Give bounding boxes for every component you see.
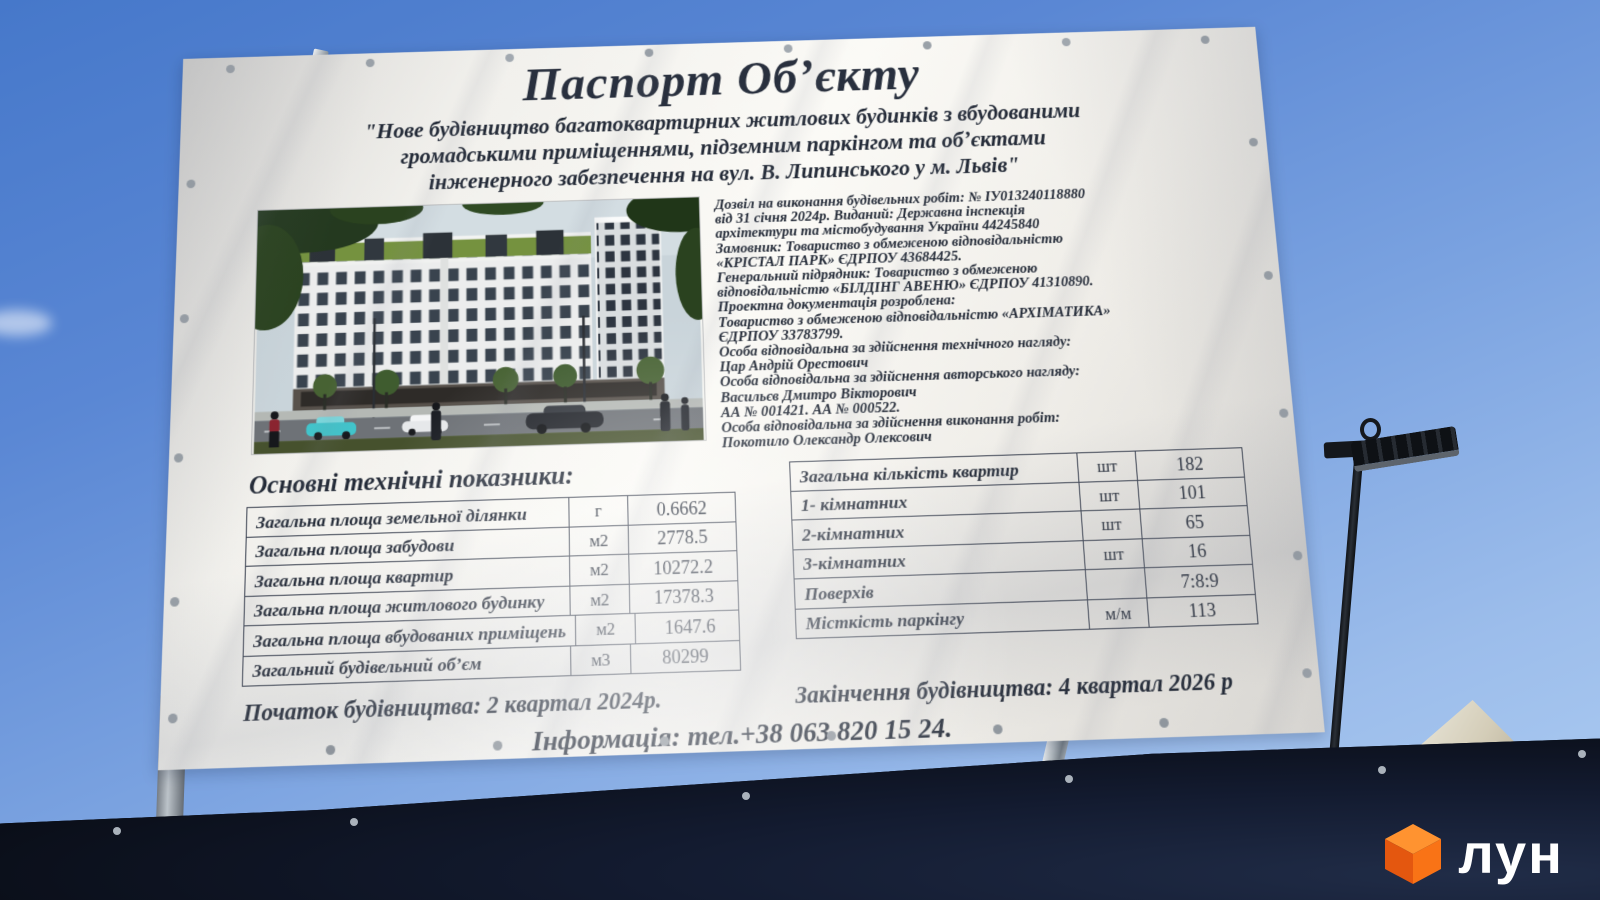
apartments-column: Загальна кількість квартир шт 182 1- кім… bbox=[789, 440, 1262, 670]
row-value: 182 bbox=[1135, 449, 1244, 480]
technical-indicators-table: Загальна площа земельної ділянки г 0.666… bbox=[242, 492, 741, 687]
row-value: 65 bbox=[1139, 507, 1249, 539]
row-unit: шт bbox=[1078, 481, 1139, 511]
row-unit: м2 bbox=[569, 555, 629, 585]
row-value: 16 bbox=[1142, 536, 1252, 568]
technical-indicators-column: Загальна площа земельної ділянки г 0.666… bbox=[242, 492, 741, 687]
photo-scene: Паспорт Обʼєкту "Нове будівництво багато… bbox=[0, 0, 1600, 900]
row-value: 101 bbox=[1137, 478, 1247, 509]
row-value: 1647.6 bbox=[635, 611, 745, 643]
row-unit: г bbox=[568, 497, 627, 527]
board-tables-row: Загальна площа земельної ділянки г 0.666… bbox=[242, 476, 1262, 687]
row-value: 10272.2 bbox=[628, 552, 737, 584]
row-value: 80299 bbox=[630, 641, 740, 674]
row-unit: м/м bbox=[1087, 598, 1149, 629]
row-value: 7:8:9 bbox=[1144, 565, 1255, 597]
permit-text-block: Дозвіл на виконання будівельних робіт: №… bbox=[714, 181, 1249, 452]
construction-passport-billboard: Паспорт Обʼєкту "Нове будівництво багато… bbox=[158, 27, 1325, 770]
board-main-row: Дозвіл на виконання будівельних робіт: №… bbox=[252, 181, 1250, 466]
row-unit: м2 bbox=[569, 585, 629, 616]
lun-watermark: лун bbox=[1383, 822, 1564, 886]
row-unit: шт bbox=[1081, 510, 1142, 540]
row-value: 17378.3 bbox=[629, 581, 738, 613]
row-value: 2778.5 bbox=[628, 522, 737, 554]
start-date-text: Початок будівництва: 2 квартал 2024р. bbox=[243, 687, 662, 728]
row-unit: м2 bbox=[569, 526, 629, 556]
row-value: 113 bbox=[1146, 595, 1257, 627]
lun-cube-icon bbox=[1383, 822, 1443, 886]
fence-rivets bbox=[0, 730, 8, 738]
lun-wordmark: лун bbox=[1458, 826, 1564, 882]
billboard-rivets bbox=[183, 59, 192, 68]
building-render-image bbox=[252, 197, 706, 454]
row-unit bbox=[1085, 569, 1146, 600]
row-unit: шт bbox=[1076, 452, 1137, 482]
row-unit: м3 bbox=[570, 645, 630, 676]
end-date-text: Закінчення будівництва: 4 квартал 2026 р bbox=[795, 668, 1234, 710]
apartments-table: Загальна кількість квартир шт 182 1- кім… bbox=[789, 448, 1259, 640]
row-value: 0.6662 bbox=[627, 493, 735, 525]
row-unit: м2 bbox=[575, 614, 635, 645]
row-unit: шт bbox=[1083, 539, 1144, 569]
